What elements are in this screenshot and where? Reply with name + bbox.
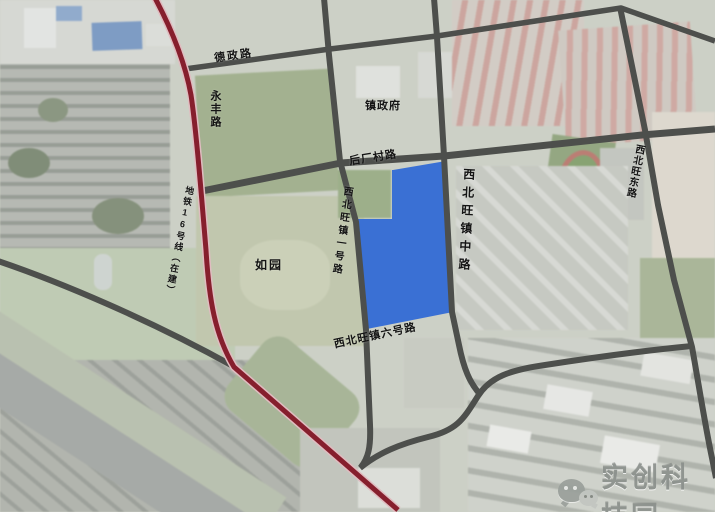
texture-blob [652, 112, 715, 264]
satellite-texture [0, 0, 715, 512]
texture-blob [640, 258, 715, 350]
texture-blob [240, 240, 330, 310]
tree-blob [38, 98, 68, 122]
watermark: 实创科技园 [558, 456, 715, 512]
road-label-yongfeng: 永丰路 [207, 90, 223, 129]
tree-blob [92, 198, 144, 234]
texture-blob [358, 468, 420, 508]
texture-blob [195, 68, 339, 197]
label-town-hall: 镇政府 [365, 97, 401, 113]
texture-blob [456, 166, 628, 330]
tree-blob [8, 148, 50, 178]
blue-roof-building [56, 6, 82, 21]
blue-roof-building [92, 21, 143, 51]
texture-blob [24, 8, 56, 48]
pond [94, 254, 112, 290]
texture-blob [356, 66, 400, 98]
label-ruyuan: 如园 [255, 256, 283, 273]
watermark-text: 实创科技园 [601, 456, 715, 512]
texture-blob [404, 338, 464, 408]
texture-blob [146, 24, 172, 46]
wechat-icon [558, 475, 593, 512]
map-canvas: 德政路 永丰路 镇政府 后厂村路 西北旺镇一号路 西北旺镇中路 西北旺东路 如园… [0, 0, 715, 512]
